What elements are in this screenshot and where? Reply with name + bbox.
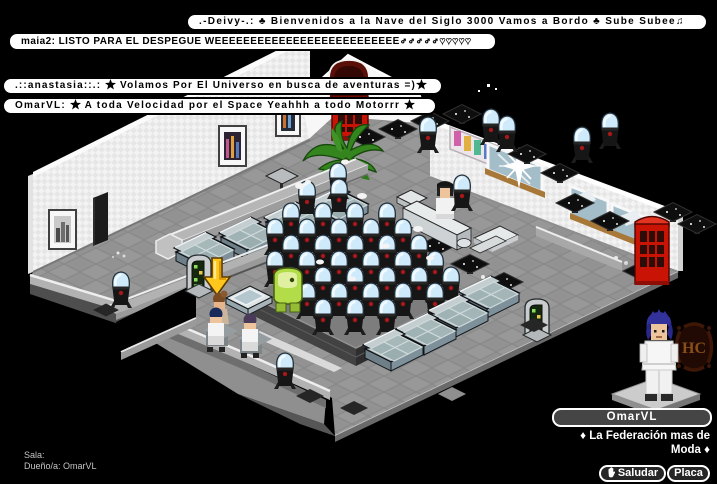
svg-text:HC: HC — [682, 340, 706, 357]
